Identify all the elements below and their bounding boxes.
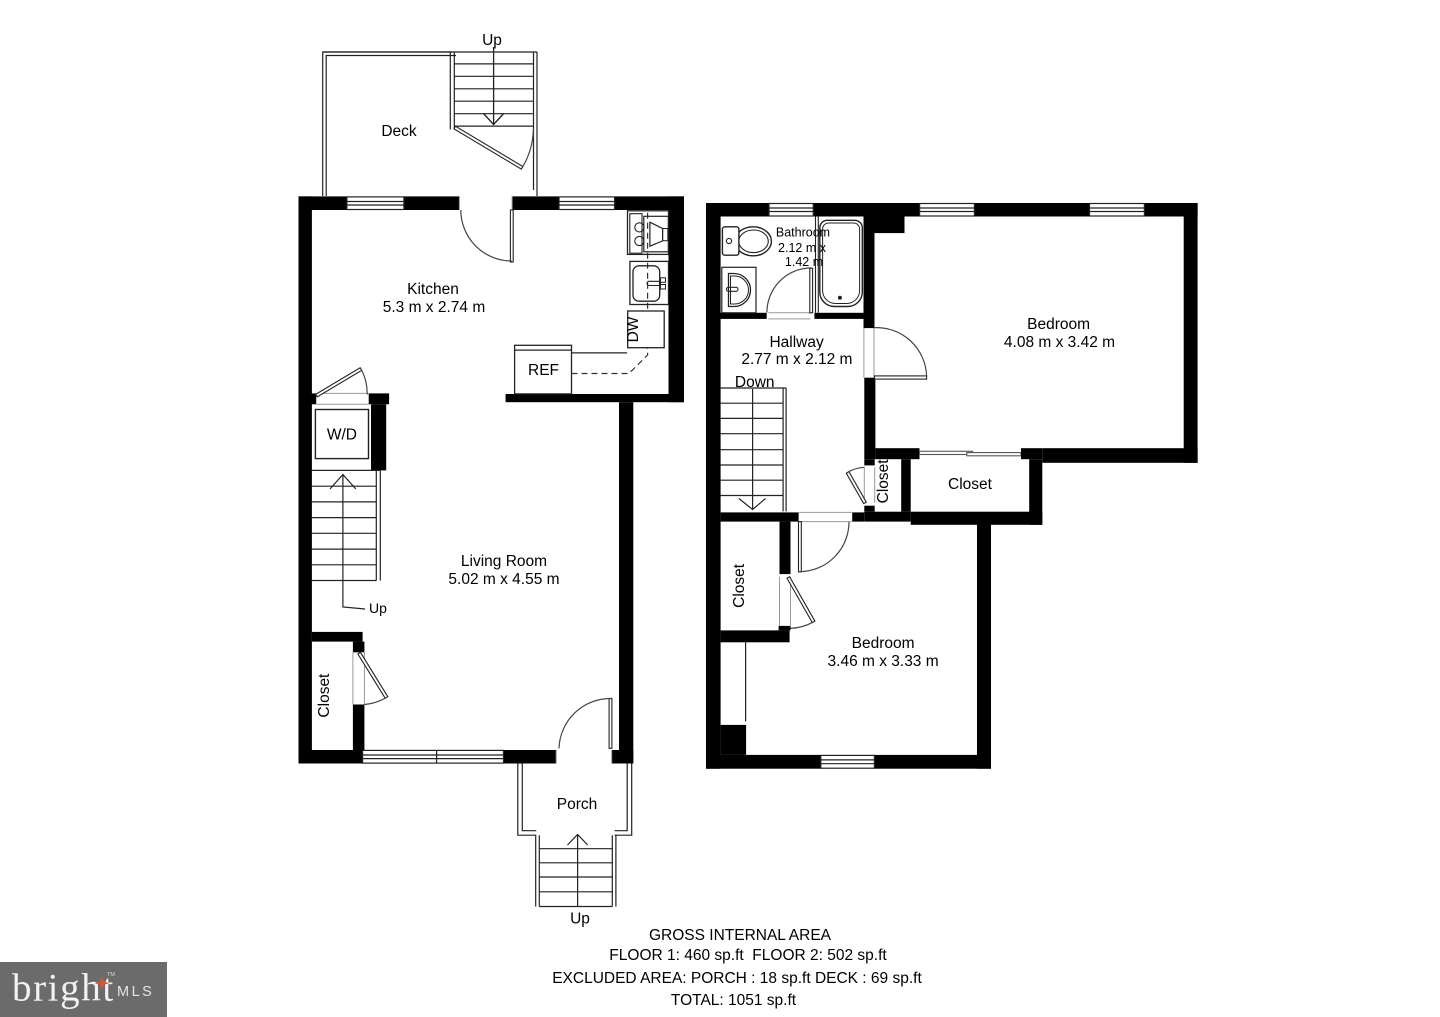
svg-text:Closet: Closet [731, 563, 748, 608]
svg-text:Bathroom: Bathroom [776, 226, 830, 240]
svg-text:Bedroom: Bedroom [852, 635, 915, 652]
svg-text:4.08 m x 3.42 m: 4.08 m x 3.42 m [1004, 334, 1115, 351]
svg-text:Closet: Closet [948, 476, 993, 493]
svg-text:Up: Up [570, 911, 590, 928]
svg-text:3.46 m x 3.33 m: 3.46 m x 3.33 m [828, 653, 939, 670]
svg-text:W/D: W/D [327, 427, 357, 444]
svg-text:Deck: Deck [381, 123, 417, 140]
svg-text:Closet: Closet [875, 459, 892, 504]
svg-text:FLOOR 1: 460 sp.ft FLOOR 2: 5: FLOOR 1: 460 sp.ft FLOOR 2: 502 sp.ft [609, 947, 887, 964]
svg-text:TOTAL: 1051 sp.ft: TOTAL: 1051 sp.ft [671, 992, 797, 1009]
svg-text:DW: DW [625, 316, 642, 342]
svg-text:2.12 m x: 2.12 m x [778, 241, 827, 255]
svg-text:Up: Up [369, 600, 387, 616]
svg-text:TM: TM [107, 972, 115, 978]
svg-text:5.02 m x 4.55 m: 5.02 m x 4.55 m [448, 571, 559, 588]
svg-text:Hallway: Hallway [769, 334, 824, 351]
svg-text:1.42 m: 1.42 m [785, 255, 823, 269]
svg-text:EXCLUDED AREA: PORCH : 18 sp.f: EXCLUDED AREA: PORCH : 18 sp.ft DECK : 6… [552, 970, 922, 987]
svg-text:MLS: MLS [117, 984, 154, 1000]
svg-text:REF: REF [528, 362, 559, 379]
svg-text:GROSS INTERNAL AREA: GROSS INTERNAL AREA [649, 927, 832, 944]
svg-text:Kitchen: Kitchen [407, 281, 459, 298]
svg-text:5.3 m x 2.74 m: 5.3 m x 2.74 m [383, 299, 486, 316]
svg-text:bright: bright [12, 967, 115, 1010]
svg-text:2.77 m x 2.12 m: 2.77 m x 2.12 m [741, 351, 852, 368]
svg-text:Living Room: Living Room [461, 553, 547, 570]
svg-text:Up: Up [482, 32, 502, 49]
svg-text:Bedroom: Bedroom [1027, 316, 1090, 333]
svg-text:Closet: Closet [316, 673, 333, 718]
svg-text:Porch: Porch [557, 796, 598, 813]
